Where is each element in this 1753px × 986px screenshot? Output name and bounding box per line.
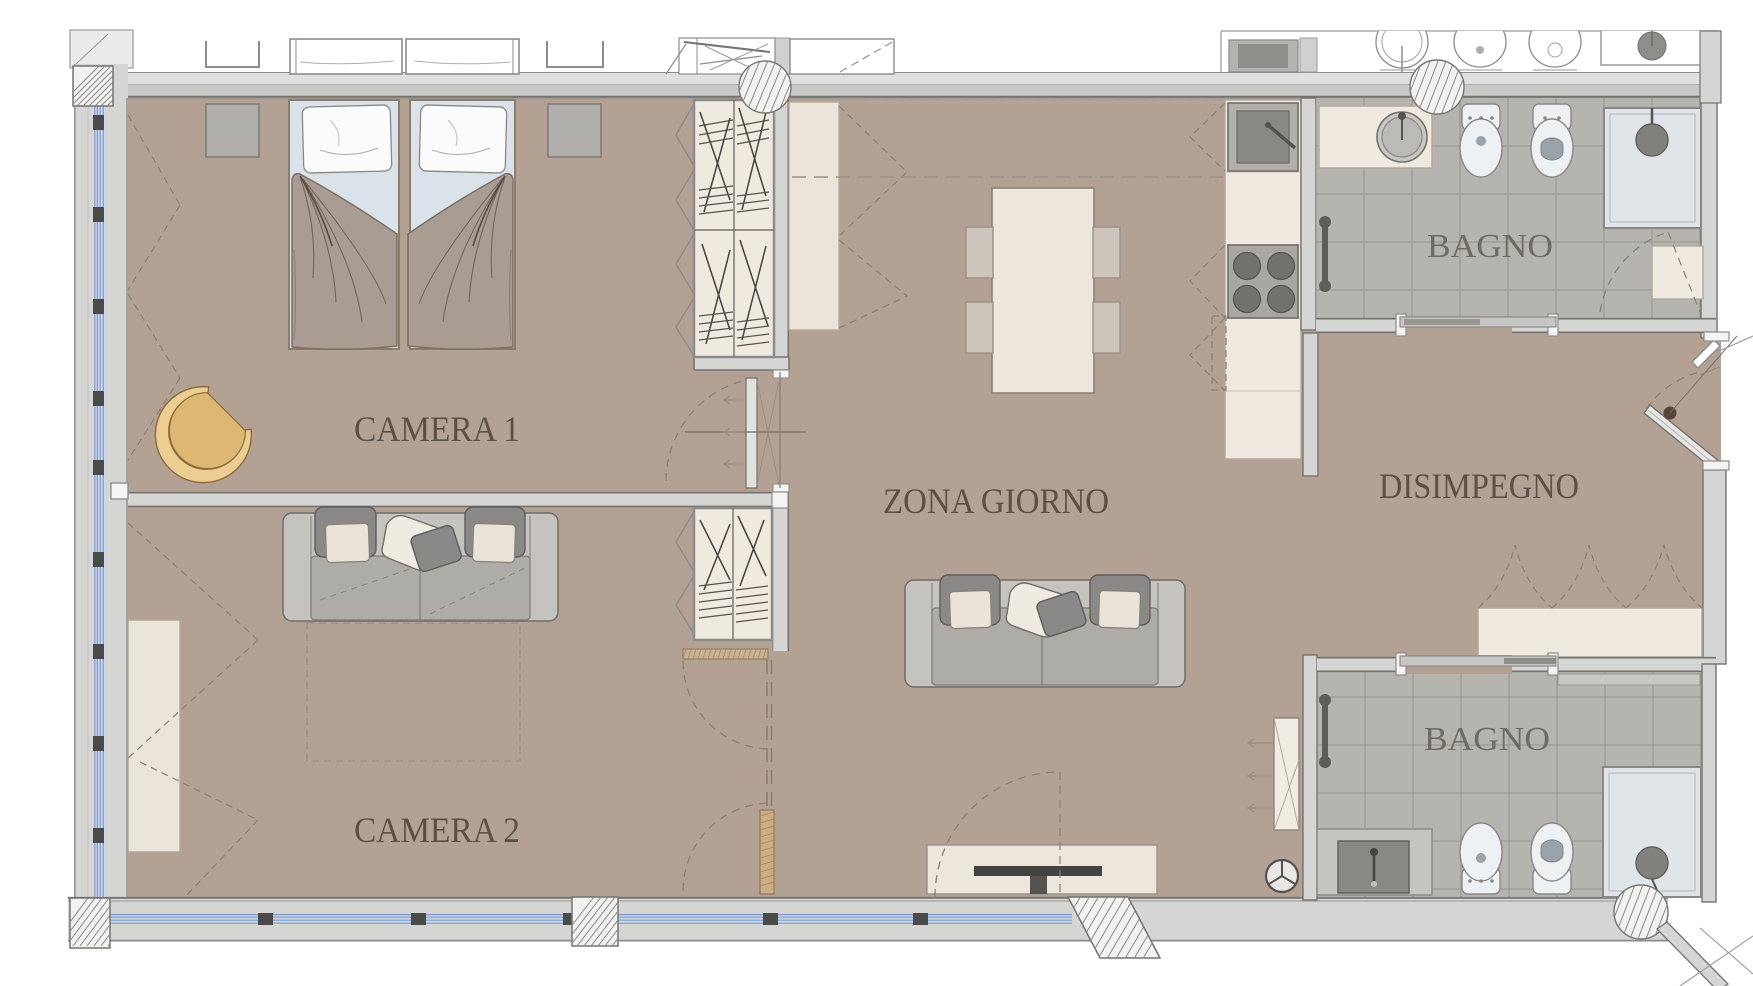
svg-text:CAMERA 2: CAMERA 2 [354, 810, 520, 850]
svg-text:DISIMPEGNO: DISIMPEGNO [1379, 466, 1579, 506]
svg-text:BAGNO: BAGNO [1427, 228, 1553, 265]
svg-text:CAMERA 1: CAMERA 1 [354, 409, 520, 449]
svg-text:BAGNO: BAGNO [1424, 721, 1550, 758]
svg-text:ZONA GIORNO: ZONA GIORNO [883, 481, 1109, 521]
